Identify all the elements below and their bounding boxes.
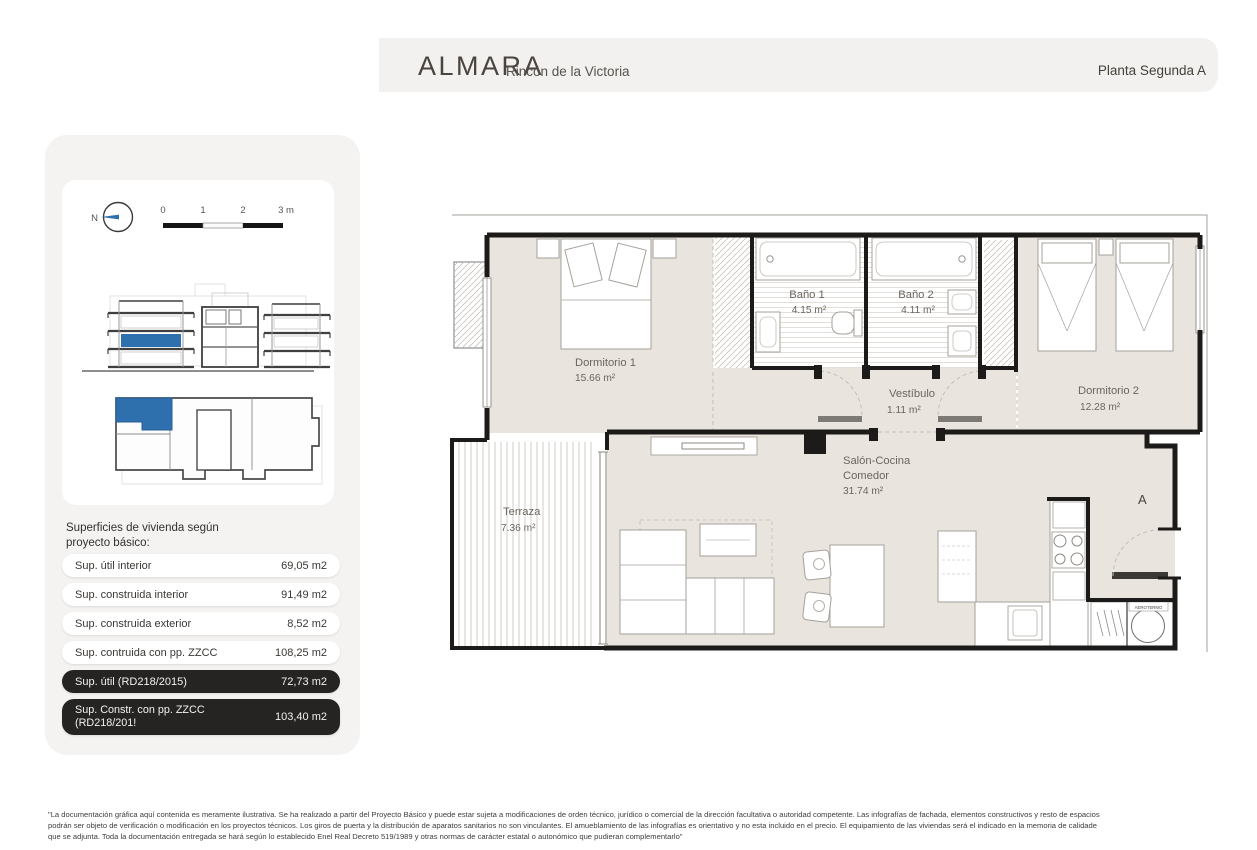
oven [1053, 572, 1085, 600]
row-label-line2: (RD218/201! [75, 717, 136, 729]
scale-tick: 2 [240, 205, 245, 216]
chair [803, 550, 832, 581]
room-name: Vestíbulo [889, 388, 935, 400]
nightstand [537, 239, 559, 258]
row-value: 91,49 m2 [281, 589, 327, 601]
surfaces-title-line1: Superficies de vivienda según [66, 521, 219, 536]
table-row: Sup. construida interior 91,49 m2 [62, 583, 340, 606]
row-value: 103,40 m2 [275, 711, 327, 723]
kitchen-island [938, 531, 976, 602]
row-value: 8,52 m2 [287, 618, 327, 630]
compass-label: N [91, 213, 98, 224]
row-label: Sup. útil (RD218/2015) [75, 676, 187, 688]
wardrobe-2 [984, 240, 1014, 368]
fridge [1053, 502, 1085, 528]
room-area: 12.28 m² [1080, 402, 1121, 413]
table-row: Sup. contruida con pp. ZZCC 108,25 m2 [62, 641, 340, 664]
highlighted-unit-elevation [121, 334, 181, 347]
row-value: 108,25 m2 [275, 647, 327, 659]
surfaces-title: Superficies de vivienda según proyecto b… [66, 521, 219, 551]
row-label: Sup. construida interior [75, 589, 188, 601]
key-plan-graphic: N 0 1 2 3 m [62, 180, 334, 505]
room-area: 15.66 m² [575, 373, 616, 384]
room-name: Baño 2 [898, 289, 933, 301]
scale-bar: 0 1 2 3 m [160, 205, 294, 228]
dining-table [830, 545, 884, 627]
sidebar-panel: N 0 1 2 3 m [45, 135, 360, 755]
room-name: Baño 1 [789, 289, 824, 301]
disclaimer-line: podrán ser objeto de verificación o modi… [48, 821, 1228, 832]
floor-key-plan [116, 398, 322, 484]
surfaces-title-line2: proyecto básico: [66, 536, 219, 551]
room-name-line2: Comedor [843, 470, 889, 482]
north-compass-icon: N [91, 203, 132, 232]
room-area: 4.11 m² [901, 305, 935, 316]
floor-plan-drawing: Dormitorio 1 15.66 m² Baño 1 4.15 m² Bañ… [435, 195, 1225, 665]
table-row: Sup. útil interior 69,05 m2 [62, 554, 340, 577]
room-name: Dormitorio 2 [1078, 385, 1139, 397]
room-area: 31.74 m² [843, 486, 884, 497]
terrace-decking [454, 442, 593, 646]
room-area: 1.11 m² [887, 405, 921, 416]
disclaimer: "La documentación gráfica aquí contenida… [48, 810, 1228, 842]
building-elevation-key [82, 284, 330, 371]
room-area: 4.15 m² [792, 305, 827, 316]
scale-tick: 1 [200, 205, 205, 216]
location-subtitle: Rincón de la Victoria [506, 64, 630, 79]
room-name: Terraza [503, 506, 541, 518]
row-label: Sup. útil interior [75, 560, 151, 572]
disclaimer-line: "La documentación gráfica aquí contenida… [48, 810, 1228, 821]
table-row-highlight: Sup. útil (RD218/2015) 72,73 m2 [62, 670, 340, 693]
door-leaf [938, 416, 982, 422]
header-bar: ALMARA Rincón de la Victoria Planta Segu… [379, 38, 1218, 92]
wardrobe-1 [715, 237, 750, 368]
door-leaf [818, 416, 862, 422]
row-label: Sup. construida exterior [75, 618, 191, 630]
aerotermo-unit [1132, 610, 1165, 643]
disclaimer-line: que se adjunta. Toda la documentación en… [48, 832, 1228, 843]
row-value: 72,73 m2 [281, 676, 327, 688]
nightstand [653, 239, 676, 258]
sofa [620, 530, 686, 634]
row-label-line1: Sup. Constr. con pp. ZZCC [75, 704, 205, 716]
surfaces-table: Sup. útil interior 69,05 m2 Sup. constru… [62, 554, 340, 741]
table-row-highlight: Sup. Constr. con pp. ZZCC (RD218/201! 10… [62, 699, 340, 735]
sofa [686, 578, 774, 634]
scale-tick: 0 [160, 205, 165, 216]
row-label: Sup. Constr. con pp. ZZCC (RD218/201! [75, 704, 205, 730]
nightstand [1099, 239, 1113, 255]
aerotermo-label: AEROTERMO [1135, 605, 1163, 610]
table-row: Sup. construida exterior 8,52 m2 [62, 612, 340, 635]
room-name: Salón-Cocina [843, 455, 911, 467]
key-plan-card: N 0 1 2 3 m [62, 180, 334, 505]
plan-sheet: ALMARA Rincón de la Victoria Planta Segu… [0, 0, 1257, 850]
room-name: Dormitorio 1 [575, 357, 636, 369]
entrance-label: A [1138, 492, 1147, 507]
floor-label: Planta Segunda A [1098, 63, 1206, 78]
scale-tick: 3 m [278, 205, 294, 216]
chair [802, 592, 831, 623]
toilet [832, 312, 854, 334]
shaft [454, 262, 487, 348]
row-label: Sup. contruida con pp. ZZCC [75, 647, 217, 659]
row-value: 69,05 m2 [281, 560, 327, 572]
room-area: 7.36 m² [501, 523, 536, 534]
